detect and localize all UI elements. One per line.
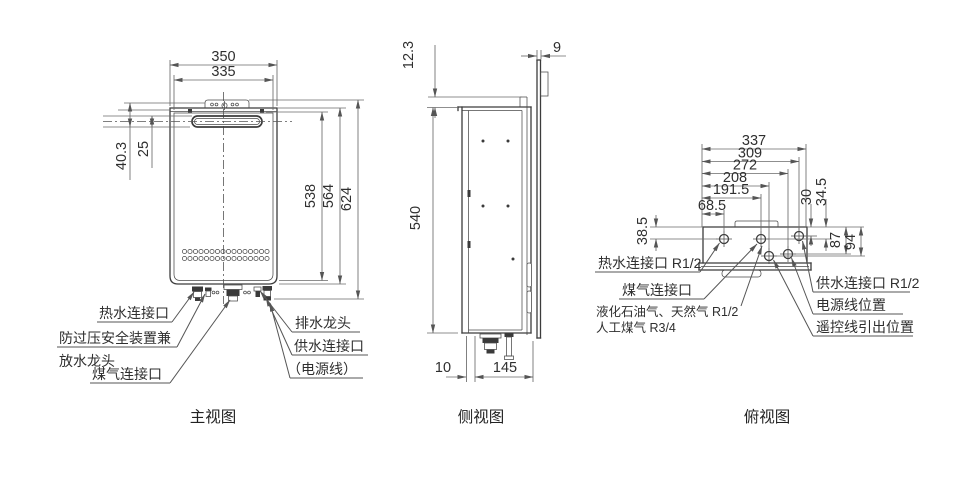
- front-label-drain: 排水龙头: [295, 315, 351, 331]
- top-view: 337 309 272 208 191.5 68.5 38.5 30 34.5 …: [595, 133, 920, 426]
- front-label-gas: 煤气连接口: [92, 366, 162, 382]
- front-exhaust-vent: [103, 116, 292, 127]
- side-bottom-connectors: [480, 333, 514, 360]
- side-dim-9: 9: [553, 40, 561, 56]
- side-dim-12-3: 12.3: [401, 41, 417, 69]
- top-dimension-texts: 337 309 272 208 191.5 68.5 38.5 30 34.5 …: [635, 133, 859, 250]
- water-heater-dimension-drawing: 350 335 40.3 25 538 564 624 热水连接口 防过压安全装…: [0, 0, 960, 480]
- top-dim-68-5: 68.5: [698, 198, 726, 214]
- front-label-supply: 供水连接口: [294, 338, 364, 354]
- side-view-caption: 侧视图: [458, 408, 505, 426]
- top-label-gas-note-2: 人工煤气 R3/4: [596, 320, 676, 335]
- side-dimension-lines: [427, 45, 566, 382]
- front-bottom-connectors: [192, 285, 272, 301]
- top-dim-38-5: 38.5: [635, 217, 651, 245]
- front-dim-350: 350: [211, 49, 235, 65]
- top-label-hot-water: 热水连接口 R1/2: [598, 255, 702, 271]
- side-dim-145: 145: [493, 360, 517, 376]
- technical-drawing-svg: 350 335 40.3 25 538 564 624 热水连接口 防过压安全装…: [0, 0, 960, 480]
- top-label-gas-note-1: 液化石油气、天然气 R1/2: [596, 304, 738, 319]
- front-label-hot-water: 热水连接口: [99, 305, 169, 321]
- front-dimension-texts: 350 335 40.3 25 538 564 624: [114, 49, 355, 211]
- side-unit-outline: [458, 60, 548, 338]
- top-view-caption: 俯视图: [744, 408, 791, 426]
- top-dim-30: 30: [799, 189, 815, 205]
- front-view: 350 335 40.3 25 538 564 624 热水连接口 防过压安全装…: [57, 49, 368, 426]
- front-dim-25: 25: [136, 141, 152, 157]
- top-label-remote: 遥控线引出位置: [816, 319, 914, 335]
- front-label-power-cord: （电源线）: [287, 361, 357, 377]
- front-dim-564: 564: [321, 184, 337, 208]
- front-dim-624: 624: [339, 187, 355, 211]
- side-dim-10: 10: [435, 360, 451, 376]
- front-view-caption: 主视图: [190, 408, 237, 426]
- front-vent-holes: [182, 249, 269, 260]
- side-dim-540: 540: [408, 206, 424, 230]
- front-dimension-lines: [103, 60, 364, 299]
- top-dim-94: 94: [843, 234, 859, 250]
- top-dim-34-5: 34.5: [814, 178, 830, 206]
- top-label-supply: 供水连接口 R1/2: [816, 275, 920, 291]
- top-label-power: 电源线位置: [816, 297, 886, 313]
- top-dim-191-5: 191.5: [713, 182, 749, 198]
- top-dim-87: 87: [828, 232, 844, 248]
- top-callouts: 热水连接口 R1/2 煤气连接口 液化石油气、天然气 R1/2 人工煤气 R3/…: [595, 241, 920, 336]
- front-dim-538: 538: [303, 184, 319, 208]
- front-dim-40-3: 40.3: [114, 142, 130, 170]
- front-dim-335: 335: [211, 64, 235, 80]
- side-view: 12.3 9 540 10 145 侧视图: [401, 40, 566, 426]
- top-label-gas: 煤气连接口: [622, 282, 692, 298]
- front-label-safety-1: 防过压安全装置兼: [59, 330, 171, 346]
- front-callouts: 热水连接口 防过压安全装置兼 放水龙头 煤气连接口 排水龙头 供水连接口 （电源…: [57, 291, 368, 383]
